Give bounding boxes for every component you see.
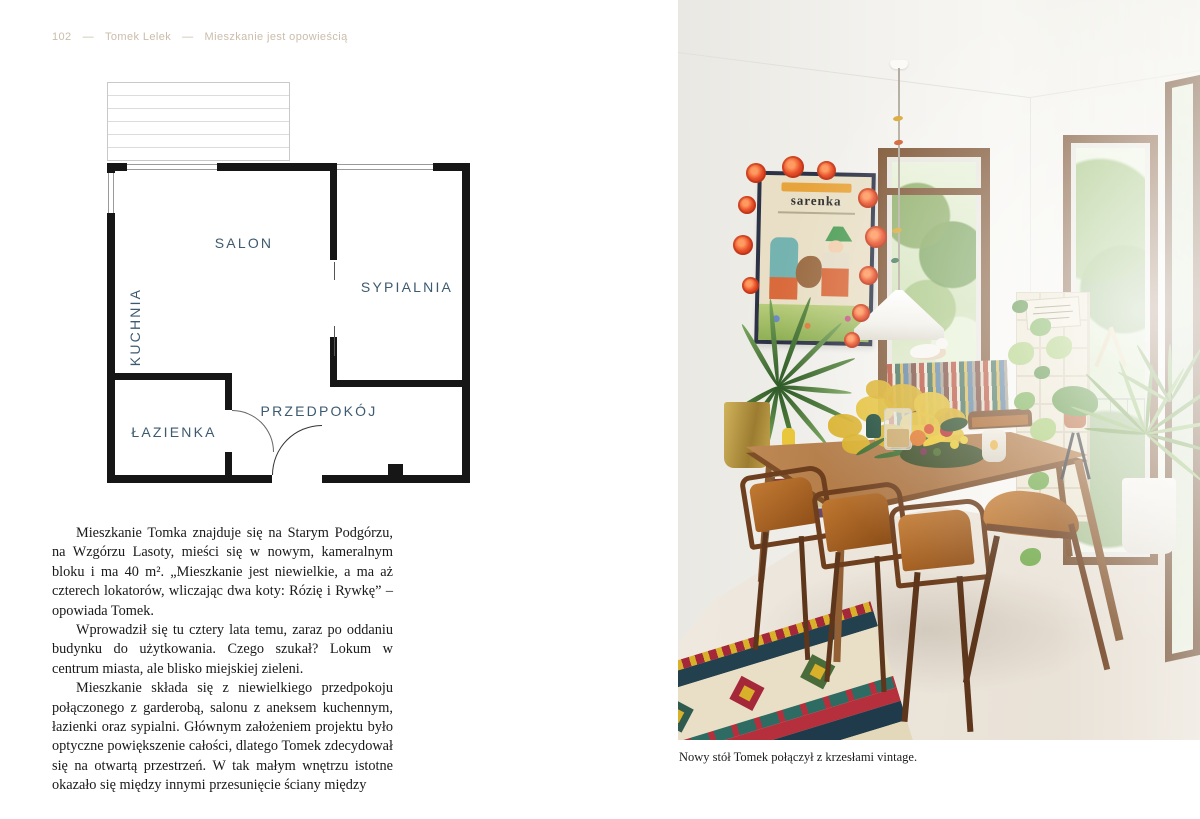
garland-flower <box>858 188 878 208</box>
room-label-kuchnia: KUCHNIA <box>128 288 142 366</box>
window-line <box>127 169 217 170</box>
paragraph: Mieszkanie Tomka znajduje się na Starym … <box>52 524 393 621</box>
room-label-lazienka: ŁAZIENKA <box>131 425 216 439</box>
head-separator: — <box>182 31 193 44</box>
bathroom-wall-right-b <box>225 452 232 476</box>
author-name: Tomek Lelek <box>105 31 171 44</box>
head-separator: — <box>83 31 94 44</box>
page-number: 102 <box>52 31 72 44</box>
poster-boy-hat <box>820 226 852 242</box>
garland-flower <box>746 163 766 183</box>
poster-title: sarenka <box>761 193 871 208</box>
book-title: Mieszkanie jest opowieścią <box>205 31 348 44</box>
window-line <box>127 164 217 165</box>
poster-child-teal-pants <box>769 277 797 300</box>
photo-caption: Nowy stół Tomek połączył z krzesłami vin… <box>679 749 917 765</box>
room-label-przedpokoj: PRZEDPOKÓJ <box>261 404 378 418</box>
poster-banner <box>781 182 852 192</box>
vintage-chair-back-velvet <box>749 475 818 532</box>
window-line <box>113 173 114 213</box>
garland-flower <box>865 226 887 248</box>
book-spread: 102 — Tomek Lelek — Mieszkanie jest opow… <box>0 0 1200 819</box>
poster-subtitle-line <box>777 211 854 215</box>
running-head: 102 — Tomek Lelek — Mieszkanie jest opow… <box>52 31 348 44</box>
poster-boy-overalls <box>821 268 849 297</box>
poster-fawn <box>795 256 822 289</box>
garland-flower <box>859 266 878 285</box>
balcony-area <box>107 82 290 161</box>
door-jamb-line <box>334 262 335 280</box>
palm-pot <box>1122 478 1176 554</box>
fruit <box>933 448 941 456</box>
entry-door-arc <box>272 425 322 475</box>
floor-plan: SALON SYPIALNIA KUCHNIA ŁAZIENKA PRZEDPO… <box>107 82 470 484</box>
body-text: Mieszkanie Tomka znajduje się na Starym … <box>52 524 393 796</box>
cat-head <box>936 338 948 349</box>
garland-flower <box>733 235 753 255</box>
wall-left-top <box>107 163 115 173</box>
garland-flower <box>742 277 759 294</box>
fruit <box>924 424 934 434</box>
wall-stub <box>388 464 403 475</box>
glass-candle-holder <box>982 430 1006 462</box>
wall-right <box>462 163 470 483</box>
room-label-salon: SALON <box>215 236 273 250</box>
garland-flower <box>782 156 804 178</box>
poster-flower-dot <box>845 316 851 322</box>
window-transom-bar <box>887 188 981 195</box>
garland-flower <box>852 304 870 322</box>
garland-flower <box>738 196 756 214</box>
bathroom-wall-right-a <box>225 373 232 410</box>
vintage-chair-back-velvet <box>897 508 974 571</box>
candle-flame <box>990 440 998 450</box>
window-line <box>337 164 433 165</box>
fruit <box>920 448 927 455</box>
wall-bottom-left <box>107 475 272 483</box>
paragraph: Wprowadził się tu cztery lata temu, zara… <box>52 621 393 679</box>
glass-jar <box>884 408 912 450</box>
fruit-plate <box>900 442 985 468</box>
garland-flower <box>817 161 836 180</box>
wall-top-b <box>217 163 337 171</box>
wall-left-main <box>107 213 115 483</box>
fruit <box>950 440 959 449</box>
window-line <box>108 173 109 213</box>
jar-contents <box>887 429 909 447</box>
poster-flower-dot <box>805 323 811 329</box>
palm-frond <box>1168 344 1172 402</box>
goldenrod-bloom <box>866 380 892 399</box>
sign-script-line <box>1034 305 1070 309</box>
bathroom-wall-top <box>113 373 232 380</box>
dining-room-photo: sarenka <box>678 0 1200 740</box>
garland-flower <box>844 332 860 348</box>
bedroom-wall-horiz <box>330 380 470 387</box>
vintage-chair-back-velvet <box>821 492 894 553</box>
cat-figurine <box>782 428 795 447</box>
fruit <box>960 436 968 444</box>
wall-bottom-right <box>322 475 470 483</box>
bedroom-wall-vert-a <box>330 171 337 260</box>
room-label-sypialnia: SYPIALNIA <box>361 280 453 294</box>
paragraph: Mieszkanie składa się z niewielkiego prz… <box>52 679 393 795</box>
window-line <box>337 169 433 170</box>
door-jamb-line <box>334 326 335 356</box>
green-goblet <box>866 414 881 438</box>
sign-script-line <box>1033 311 1072 315</box>
